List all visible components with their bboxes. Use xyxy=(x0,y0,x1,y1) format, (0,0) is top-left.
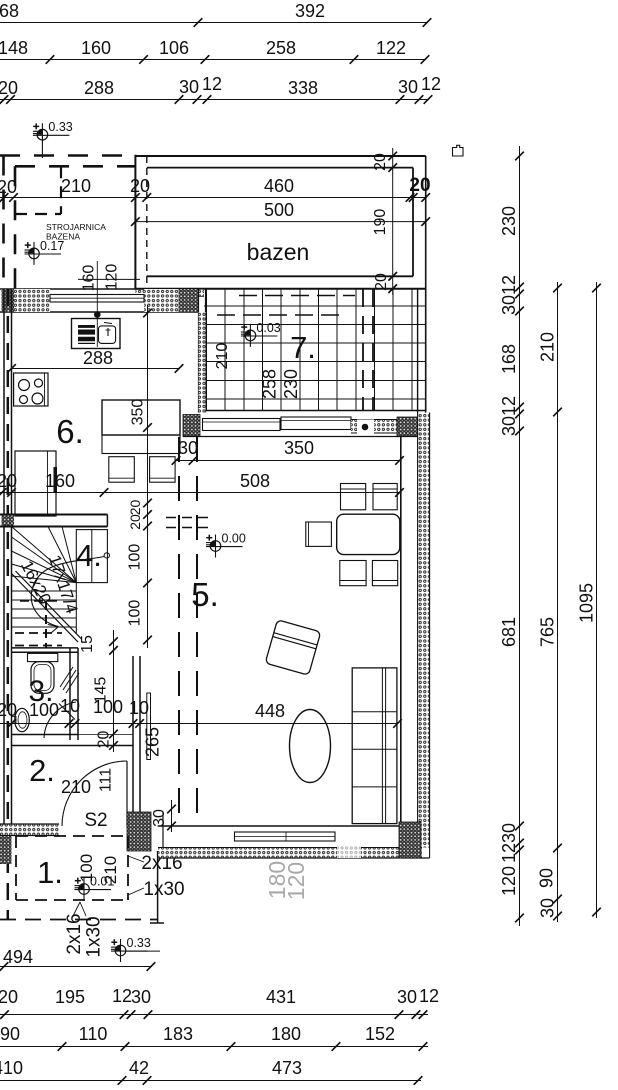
svg-text:120: 120 xyxy=(499,866,519,896)
svg-text:122: 122 xyxy=(376,38,406,58)
svg-text:2.: 2. xyxy=(29,753,55,788)
svg-text:106: 106 xyxy=(159,38,189,58)
svg-text:30: 30 xyxy=(398,77,418,97)
svg-text:30: 30 xyxy=(499,416,519,436)
svg-text:20: 20 xyxy=(96,731,113,749)
svg-text:460: 460 xyxy=(264,176,294,196)
svg-text:195: 195 xyxy=(55,987,85,1007)
svg-text:30: 30 xyxy=(178,438,198,458)
svg-text:210: 210 xyxy=(214,343,231,370)
svg-text:42: 42 xyxy=(129,1058,149,1078)
svg-text:410: 410 xyxy=(0,1058,23,1078)
svg-text:338: 338 xyxy=(288,78,318,98)
svg-text:431: 431 xyxy=(266,987,296,1007)
svg-text:30: 30 xyxy=(538,898,558,918)
svg-text:190: 190 xyxy=(372,209,389,236)
svg-text:210: 210 xyxy=(61,777,91,797)
svg-text:30: 30 xyxy=(499,295,519,315)
svg-text:30: 30 xyxy=(151,809,168,827)
svg-text:168: 168 xyxy=(499,344,519,374)
svg-text:20: 20 xyxy=(127,514,143,530)
svg-text:90: 90 xyxy=(537,868,557,888)
svg-text:30: 30 xyxy=(397,987,417,1007)
svg-text:10: 10 xyxy=(129,698,149,718)
svg-text:681: 681 xyxy=(499,617,519,647)
svg-text:288: 288 xyxy=(83,348,113,368)
svg-text:12: 12 xyxy=(499,396,519,416)
svg-text:120: 120 xyxy=(104,264,121,291)
svg-text:160: 160 xyxy=(45,471,75,491)
svg-text:392: 392 xyxy=(295,1,325,21)
svg-text:12: 12 xyxy=(419,986,439,1006)
svg-text:12: 12 xyxy=(499,275,519,295)
svg-text:20: 20 xyxy=(0,78,18,98)
svg-text:120: 120 xyxy=(283,862,309,900)
svg-text:350: 350 xyxy=(130,399,147,426)
svg-text:473: 473 xyxy=(272,1058,302,1078)
svg-text:STROJARNICA: STROJARNICA xyxy=(46,222,106,232)
svg-text:210: 210 xyxy=(538,332,558,362)
svg-text:12: 12 xyxy=(202,74,222,94)
svg-text:1x30: 1x30 xyxy=(84,916,105,957)
svg-text:30: 30 xyxy=(499,823,519,843)
svg-text:100: 100 xyxy=(127,600,144,627)
svg-text:0.17: 0.17 xyxy=(40,239,64,253)
svg-text:148: 148 xyxy=(0,38,28,58)
svg-text:152: 152 xyxy=(365,1024,395,1044)
svg-text:258: 258 xyxy=(260,369,280,399)
svg-text:20: 20 xyxy=(0,177,17,197)
svg-text:210: 210 xyxy=(61,176,91,196)
svg-text:30: 30 xyxy=(179,77,199,97)
svg-text:bazen: bazen xyxy=(247,239,310,265)
svg-text:15: 15 xyxy=(79,635,96,653)
svg-text:230: 230 xyxy=(281,369,301,399)
svg-text:1.: 1. xyxy=(37,855,63,890)
svg-text:350: 350 xyxy=(284,438,314,458)
svg-text:230: 230 xyxy=(499,206,519,236)
svg-text:160: 160 xyxy=(81,265,98,292)
svg-text:111: 111 xyxy=(98,768,115,792)
svg-text:0.03: 0.03 xyxy=(256,321,280,335)
svg-text:12: 12 xyxy=(112,986,132,1006)
svg-text:30: 30 xyxy=(131,987,151,1007)
svg-text:20: 20 xyxy=(0,471,17,491)
svg-text:10: 10 xyxy=(60,696,80,716)
svg-text:258: 258 xyxy=(266,38,296,58)
svg-text:20: 20 xyxy=(0,987,18,1007)
svg-text:180: 180 xyxy=(271,1024,301,1044)
svg-text:765: 765 xyxy=(538,617,558,647)
svg-text:0.33: 0.33 xyxy=(127,936,151,950)
svg-text:100: 100 xyxy=(93,697,123,717)
svg-text:4.: 4. xyxy=(76,538,102,573)
svg-text:500: 500 xyxy=(264,200,294,220)
svg-text:1095: 1095 xyxy=(577,583,597,623)
svg-text:20: 20 xyxy=(373,273,390,291)
svg-text:S2: S2 xyxy=(84,810,107,831)
svg-text:265: 265 xyxy=(143,727,163,757)
svg-text:0.01: 0.01 xyxy=(90,874,114,888)
svg-text:1x30: 1x30 xyxy=(143,879,184,900)
svg-text:183: 183 xyxy=(163,1024,193,1044)
svg-text:190: 190 xyxy=(0,1024,20,1044)
svg-text:20: 20 xyxy=(127,500,143,516)
svg-text:110: 110 xyxy=(79,1024,108,1044)
svg-text:20: 20 xyxy=(0,700,17,720)
svg-text:0.33: 0.33 xyxy=(48,120,72,134)
svg-text:160: 160 xyxy=(81,38,111,58)
svg-text:508: 508 xyxy=(240,471,270,491)
svg-text:448: 448 xyxy=(255,701,285,721)
svg-text:12: 12 xyxy=(499,843,519,863)
svg-text:0.00: 0.00 xyxy=(222,531,246,545)
svg-text:288: 288 xyxy=(84,78,114,98)
svg-text:6.: 6. xyxy=(56,413,84,450)
svg-text:12: 12 xyxy=(421,74,441,94)
svg-text:100: 100 xyxy=(29,700,59,720)
svg-text:7.: 7. xyxy=(290,330,316,365)
svg-text:68: 68 xyxy=(0,1,19,21)
svg-text:5.: 5. xyxy=(191,576,219,613)
svg-text:100: 100 xyxy=(127,544,144,571)
svg-text:20: 20 xyxy=(372,153,389,171)
